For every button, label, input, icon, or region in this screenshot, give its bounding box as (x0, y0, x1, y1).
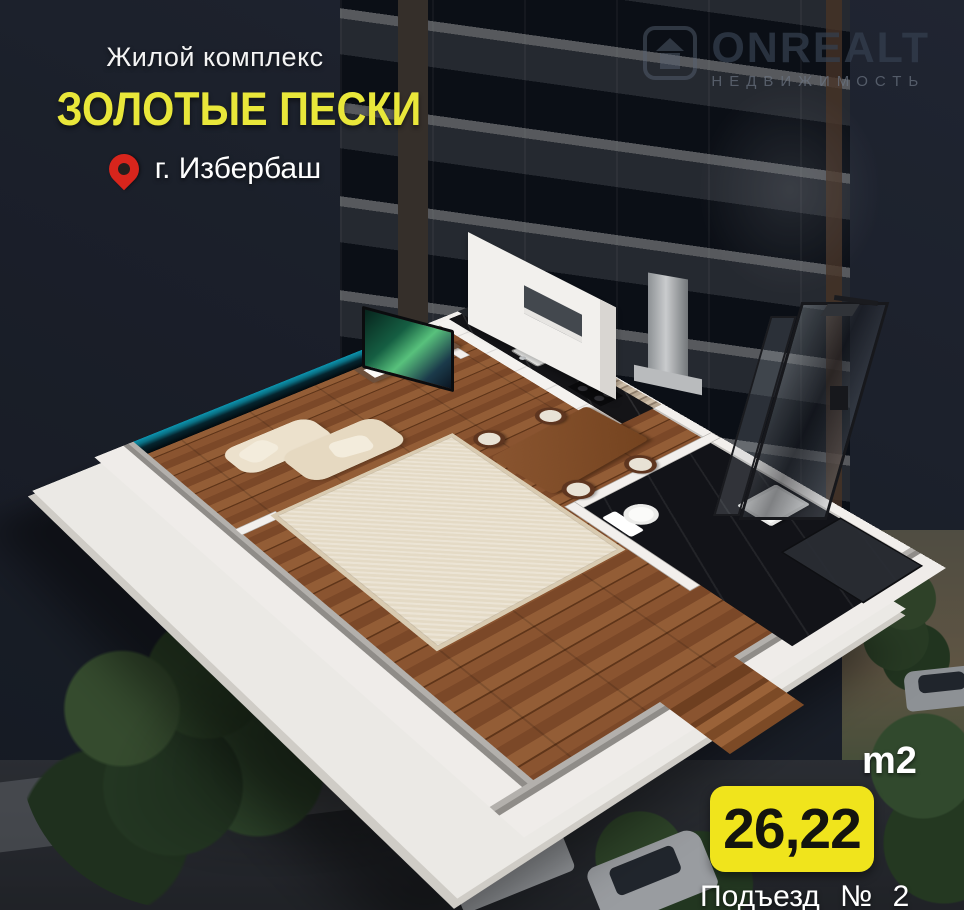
area-badge: 26,22 (710, 786, 874, 872)
entrance-label: Подъезд № 2 (700, 880, 909, 910)
brand-tagline: НЕДВИЖИМОСТЬ (711, 73, 930, 90)
city-label: г. Избербаш (155, 152, 321, 186)
location-pin-icon (103, 148, 145, 190)
area-unit-label: m2 (862, 740, 917, 783)
brand-name: ONREALT (711, 26, 930, 70)
city-row: г. Избербаш (35, 152, 395, 186)
real-estate-poster: Жилой комплекс ЗОЛОТЫЕ ПЕСКИ г. Избербаш… (0, 0, 964, 910)
range-hood (648, 272, 688, 383)
area-value: 26,22 (723, 796, 861, 862)
complex-name: ЗОЛОТЫЕ ПЕСКИ (57, 81, 374, 136)
brand-watermark: ONREALT НЕДВИЖИМОСТЬ (643, 26, 930, 90)
house-icon (643, 26, 697, 80)
shower-mixer (830, 386, 848, 410)
title-block: Жилой комплекс ЗОЛОТЫЕ ПЕСКИ г. Избербаш (35, 42, 395, 186)
complex-label: Жилой комплекс (35, 42, 395, 73)
